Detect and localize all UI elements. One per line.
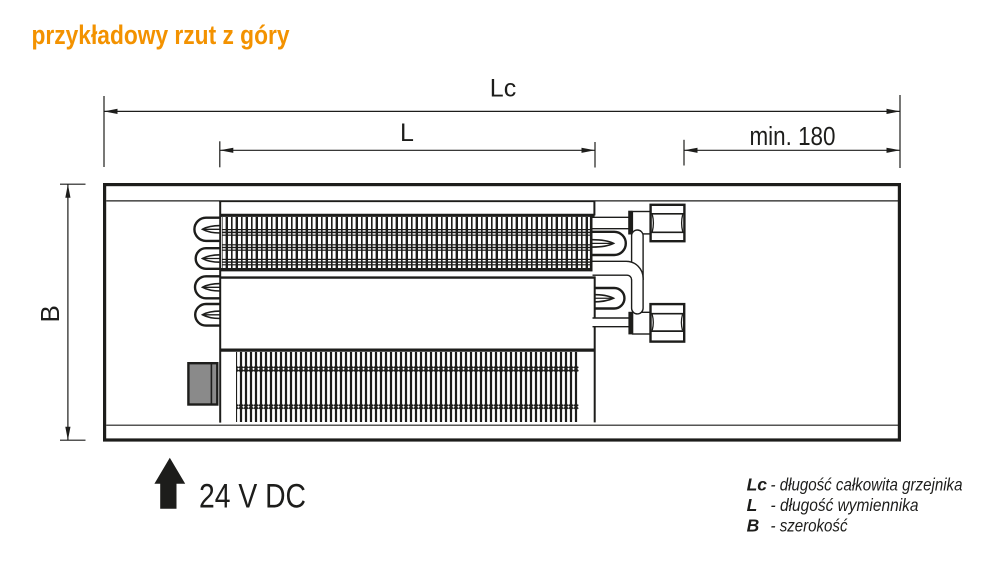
svg-text:- długość całkowita grzejnika: - długość całkowita grzejnika [771,475,963,495]
svg-text:przykładowy rzut z góry: przykładowy rzut z góry [32,19,290,50]
svg-text:24 V DC: 24 V DC [199,478,306,516]
svg-text:B: B [35,305,65,322]
svg-text:Lc: Lc [747,475,768,495]
svg-text:L: L [747,495,758,515]
svg-text:Lc: Lc [490,75,516,103]
svg-text:B: B [747,516,760,536]
svg-text:- szerokość: - szerokość [771,516,848,536]
svg-text:- długość wymiennika: - długość wymiennika [771,495,919,515]
svg-text:L: L [400,119,414,147]
svg-text:min. 180: min. 180 [750,123,836,151]
